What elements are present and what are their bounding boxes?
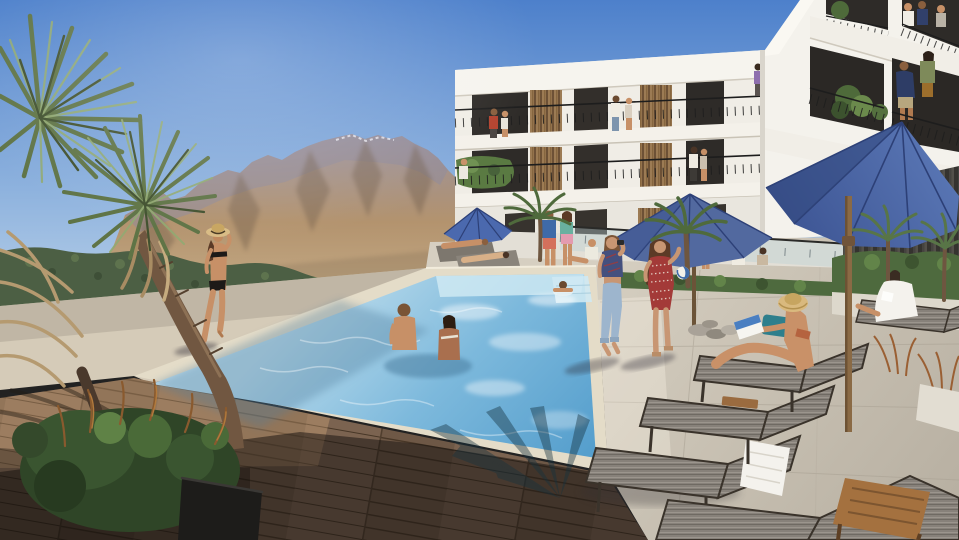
pool-courtyard-rendering: Palm-desert apartment complex pool court… [0, 0, 959, 540]
camera [617, 240, 624, 245]
wood-slat-screen [530, 147, 562, 193]
rendering-canvas: Palm-desert apartment complex pool court… [0, 0, 959, 540]
wood-slat-screen [530, 90, 562, 135]
beach-ball [677, 267, 690, 280]
wood-slat-screen [640, 85, 672, 129]
wood-slat-screen [640, 143, 672, 189]
balcony-plant [831, 1, 849, 19]
